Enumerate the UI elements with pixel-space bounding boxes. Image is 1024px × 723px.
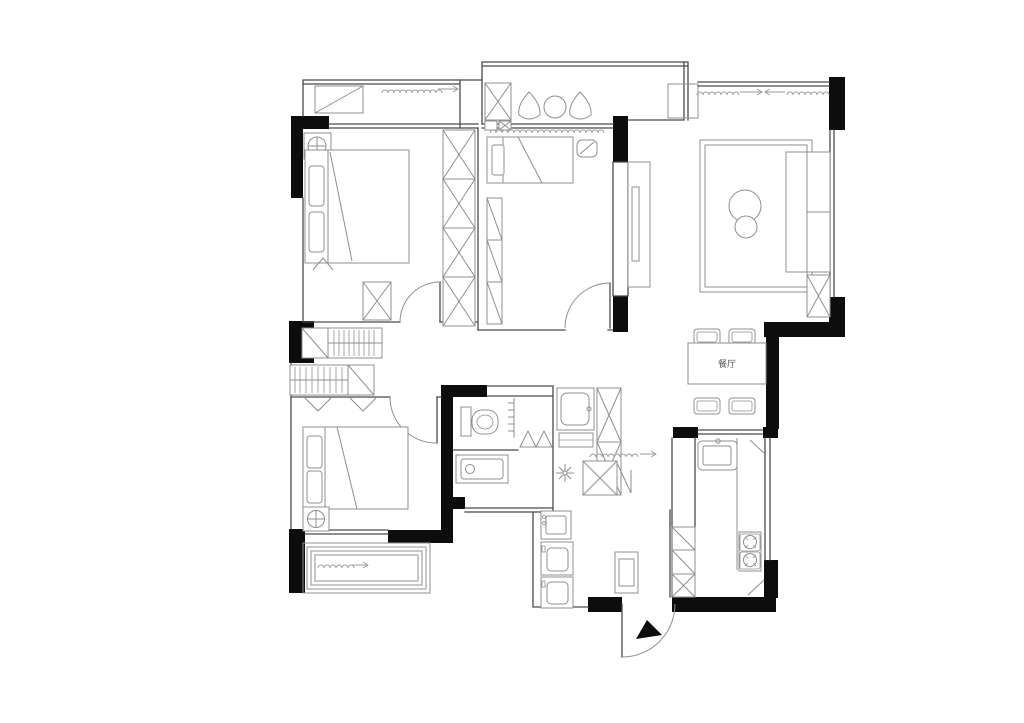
- wall-segment: [673, 427, 698, 438]
- duct-shaft: [668, 84, 698, 118]
- wall-segment: [588, 597, 622, 612]
- closet: [290, 365, 374, 395]
- second-bedroom: [303, 397, 437, 531]
- bay-window: [307, 547, 426, 589]
- closet: [302, 328, 382, 358]
- door-arc-icon: [400, 282, 440, 322]
- pillow: [492, 145, 504, 175]
- wall-segment: [672, 597, 776, 612]
- washing-machine: [541, 542, 573, 575]
- stove: [739, 532, 761, 571]
- northwest-balcony: [315, 86, 458, 113]
- towel-rack-icon: [508, 398, 514, 438]
- master-bedroom: [304, 130, 475, 326]
- folding-door-icon: [520, 431, 552, 447]
- coffee-table: [735, 216, 757, 238]
- laundry-sink: [541, 511, 571, 539]
- dryer: [541, 577, 573, 608]
- window-wall: [698, 82, 829, 86]
- wall-segment: [388, 530, 441, 543]
- curtain-icon: [697, 92, 739, 95]
- sliding-door: [698, 430, 762, 434]
- curtain-arrow-icon: [352, 562, 368, 568]
- living-room: [628, 89, 830, 317]
- north-balcony: [485, 83, 604, 133]
- wall-segment: [764, 560, 778, 598]
- entry: [615, 552, 675, 657]
- window-wall: [482, 62, 688, 124]
- curtain-arrow-icon: [640, 451, 656, 457]
- curtain-icon: [318, 565, 354, 568]
- wall-segment: [829, 77, 845, 130]
- entry-arrow-icon: [636, 620, 662, 639]
- floor-plan: 餐厅: [0, 0, 1024, 723]
- tv-icon: [632, 187, 639, 261]
- curtain-icon: [382, 90, 442, 93]
- fridge: [583, 461, 631, 495]
- wall-segment: [441, 497, 465, 509]
- pillow: [309, 166, 324, 206]
- kitchen: [672, 438, 764, 597]
- plant-decor-icon: [519, 92, 540, 119]
- dining-room-label: 餐厅: [718, 358, 736, 370]
- ceiling-light-icon: [556, 464, 574, 482]
- wall-segment: [291, 116, 303, 198]
- sofa: [786, 152, 830, 272]
- bay-window: [311, 551, 422, 585]
- side-table: [807, 275, 830, 317]
- window-wall: [329, 124, 478, 128]
- lamp-icon: [307, 510, 325, 528]
- dining-chair: [729, 398, 755, 414]
- dining-chair: [694, 398, 720, 414]
- shelf: [559, 433, 593, 447]
- cabinet: [363, 282, 391, 320]
- curtain-icon: [787, 92, 829, 95]
- curtain-icon: [490, 130, 604, 133]
- kitchen-cabinets: [672, 527, 695, 597]
- wall-line: [672, 438, 695, 597]
- corner-mark: [748, 440, 764, 595]
- plant-decor-icon: [544, 96, 566, 118]
- hallway-closets: [290, 328, 382, 411]
- utility-corridor: [556, 388, 656, 495]
- cabinet: [485, 83, 511, 130]
- toilet-icon: [461, 407, 498, 436]
- bathroom: [456, 398, 552, 483]
- window-wall: [765, 438, 770, 560]
- bedside-table: [577, 140, 597, 157]
- pillow: [309, 212, 324, 252]
- wardrobe: [443, 130, 475, 326]
- bathtub: [456, 455, 508, 483]
- pillow: [307, 471, 322, 503]
- wall-segment: [613, 296, 628, 332]
- laundry: [541, 511, 573, 608]
- wall-segment: [613, 116, 628, 162]
- kitchen-sink: [698, 439, 737, 470]
- middle-bedroom: [487, 137, 610, 328]
- tv-console: [628, 162, 650, 287]
- wall-line: [453, 386, 553, 512]
- shoe-cabinet: [615, 552, 638, 593]
- floor-plan-canvas: 餐厅: [0, 0, 1024, 723]
- curtain-arrow-icon: [765, 89, 785, 95]
- wall-segment: [763, 427, 778, 438]
- washbasin: [557, 388, 594, 430]
- dining-room: 餐厅: [688, 329, 766, 414]
- closet-door-mark: [305, 398, 376, 411]
- door-arc-icon: [565, 283, 610, 328]
- south-balcony: [303, 543, 430, 593]
- wall-segment: [441, 385, 487, 397]
- window-wall: [830, 130, 834, 297]
- wall-segment: [766, 337, 779, 429]
- plant-decor-icon: [570, 92, 591, 119]
- pillow: [307, 436, 322, 468]
- tv-wall: [613, 162, 628, 296]
- curtain-arrow-icon: [740, 89, 762, 95]
- wall-segment: [764, 322, 845, 337]
- wall-segment: [441, 385, 453, 543]
- bookshelf: [487, 198, 502, 324]
